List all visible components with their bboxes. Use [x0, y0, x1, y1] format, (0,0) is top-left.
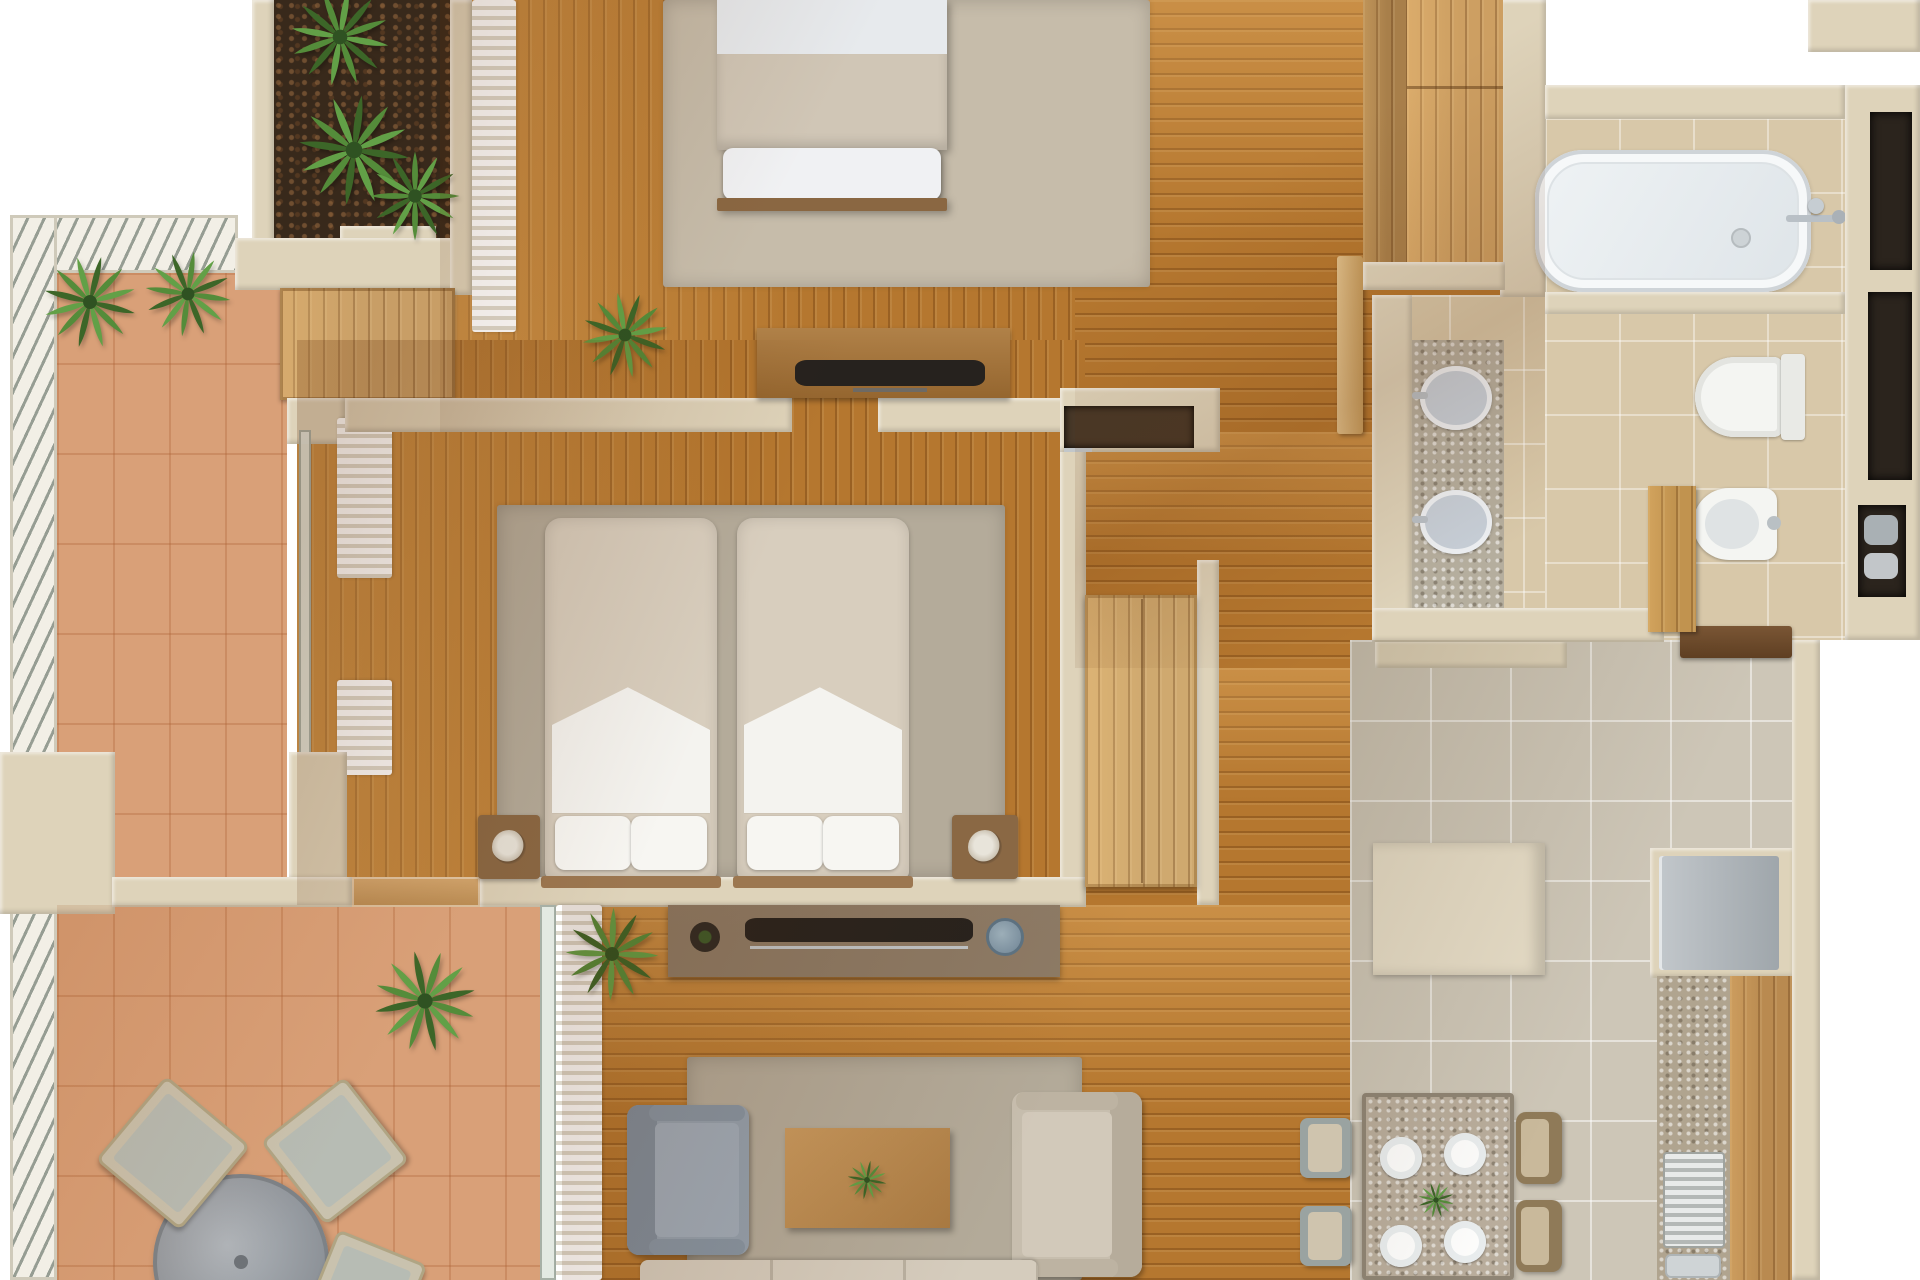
bidet-basin: [1705, 499, 1759, 549]
table-lamp: [492, 830, 526, 864]
terrace-door-threshold: [352, 877, 480, 907]
bedroom2-window-glass: [299, 430, 311, 770]
tv-stand-bar: [853, 388, 927, 392]
potted-palm-terrace-top: [38, 250, 142, 354]
vanity-sink: [1420, 490, 1492, 554]
faucet-knob: [1832, 210, 1846, 224]
armchair-cushion: [1022, 1112, 1112, 1257]
media-sideboard: [668, 905, 1060, 977]
place-setting: [1444, 1133, 1486, 1175]
bed-frame: [733, 876, 913, 888]
master-south-wall-left: [345, 398, 792, 432]
kitchen-top-wall: [1375, 640, 1567, 668]
dining-chair-wood: [1516, 1200, 1562, 1272]
refrigerator: [1659, 856, 1779, 970]
hall-wardrobe-narrow: [1363, 0, 1407, 268]
chair-cushion: [1521, 1119, 1549, 1177]
tub-faucet: [1786, 198, 1850, 240]
hall-wardrobe-base: [1363, 262, 1505, 290]
faucet-knob: [1808, 198, 1824, 214]
master-bedroom-curtain: [472, 0, 516, 332]
bed-duvet: [717, 54, 947, 150]
decor-vase: [690, 922, 720, 952]
master-tv: [795, 360, 985, 386]
armchair-beige: [1012, 1092, 1142, 1277]
table-lamp: [968, 830, 1002, 864]
dining-chair-wood: [1516, 1112, 1562, 1184]
hall-wardrobe-wide: [1407, 0, 1503, 268]
vanity-west-wall: [1372, 295, 1412, 640]
armchair-arm: [1016, 1092, 1118, 1110]
towel-roll: [1864, 515, 1898, 545]
bedroom2-east-wall: [1060, 432, 1086, 907]
armchair-back: [627, 1105, 657, 1255]
dining-centerpiece: [1416, 1180, 1456, 1220]
potted-palm-terrace-top: [140, 246, 236, 342]
hallway-console-frame: [1060, 388, 1220, 452]
dish-rack: [1663, 1152, 1725, 1248]
kitchen-cabinet-column: [1730, 976, 1792, 1280]
terrace-railing-left: [10, 215, 57, 1280]
table-center-cap: [234, 1255, 248, 1269]
wardrobe-shelf-seam: [1407, 86, 1503, 89]
living-tv: [745, 918, 973, 942]
sink-faucet: [1412, 516, 1428, 523]
pillow: [555, 816, 631, 870]
bedroom2-curtain-upper: [337, 418, 392, 578]
bathroom-wood-cabinet: [1648, 486, 1696, 632]
place-setting: [1444, 1221, 1486, 1263]
place-setting: [1380, 1225, 1422, 1267]
soundbar: [750, 946, 968, 949]
kitchen-island: [1373, 843, 1545, 975]
bidet-faucet: [1767, 516, 1781, 530]
faucet-spout: [1786, 215, 1836, 222]
master-tv-console: [757, 328, 1010, 398]
sofa-partial: [640, 1260, 1038, 1280]
living-window-glass: [540, 905, 556, 1280]
dining-chair-grey: [1300, 1118, 1352, 1178]
hallway-console-rail: [1064, 448, 1092, 452]
twin-bed-right: [737, 518, 909, 878]
planter-wall-left: [252, 0, 274, 248]
bathtub-basin: [1547, 162, 1799, 280]
kitchen-door-leaf: [1680, 626, 1792, 658]
sink-faucet: [1412, 392, 1428, 399]
potted-palm-terrace-door: [368, 944, 482, 1058]
chair-cushion: [1521, 1207, 1549, 1265]
bathroom-bottom-wall: [1372, 608, 1664, 642]
master-south-wall-right: [878, 398, 1085, 432]
place-setting: [1380, 1137, 1422, 1179]
armchair-cushion: [655, 1123, 739, 1237]
armchair-back: [1110, 1092, 1142, 1277]
wardrobe-seam: [1141, 599, 1143, 883]
decor-plate: [986, 918, 1024, 956]
bathroom-top-wall: [1545, 85, 1845, 119]
hallway-wardrobe-wall: [1197, 560, 1219, 905]
planter-shrub: [365, 146, 465, 246]
hallway-tall-wardrobe: [1085, 595, 1197, 887]
armchair-arm: [649, 1105, 745, 1121]
pillow: [823, 816, 899, 870]
toilet-tank: [1781, 354, 1805, 440]
bed-frame: [541, 876, 721, 888]
vanity-sink: [1420, 366, 1492, 430]
kitchen-counter: [1657, 976, 1730, 1280]
potted-palm-master: [577, 287, 673, 383]
bathtub: [1535, 150, 1811, 292]
bed-frame-edge: [717, 198, 947, 211]
chair-cushion: [1308, 1124, 1342, 1172]
wall-niche: [1870, 112, 1912, 270]
nightstand-left: [478, 815, 540, 879]
pillow: [631, 816, 707, 870]
floor-plan-canvas: [0, 0, 1920, 1280]
bathroom-door-leaf: [1337, 256, 1363, 434]
nightstand-right: [952, 815, 1018, 879]
potted-palm-living: [560, 902, 664, 1006]
coffee-table-plant: [845, 1158, 889, 1202]
twin-bed-left: [545, 518, 717, 878]
wall-niche-towels: [1858, 505, 1906, 597]
bedroom2-closet: [280, 288, 455, 400]
bedroom2-window-wall-bottom: [289, 752, 347, 880]
towel-roll: [1864, 553, 1898, 579]
terrace-living-wall: [112, 877, 352, 907]
bathtub-drain: [1731, 228, 1751, 248]
hallway-console-slot: [1064, 406, 1194, 448]
armchair-blue: [627, 1105, 749, 1255]
fridge-enclosure: [1650, 848, 1796, 978]
terrace-pillar: [0, 752, 115, 914]
toilet: [1695, 354, 1805, 440]
pillow: [747, 816, 823, 870]
dining-chair-grey: [1300, 1206, 1352, 1266]
chair-cushion: [1308, 1212, 1342, 1260]
armchair-arm: [649, 1239, 745, 1255]
bidet: [1693, 488, 1777, 560]
tub-ledge-wall: [1545, 292, 1845, 314]
bed-sheet-head: [717, 0, 947, 58]
planter-shrub: [285, 0, 395, 92]
top-right-corner-wall: [1808, 0, 1920, 52]
toilet-bowl: [1695, 357, 1783, 437]
kitchen-sink: [1665, 1254, 1721, 1278]
kitchen-right-wall: [1792, 640, 1820, 1280]
bed-foot-bench: [723, 148, 941, 200]
wall-niche: [1868, 292, 1912, 480]
master-double-bed: [717, 0, 947, 212]
